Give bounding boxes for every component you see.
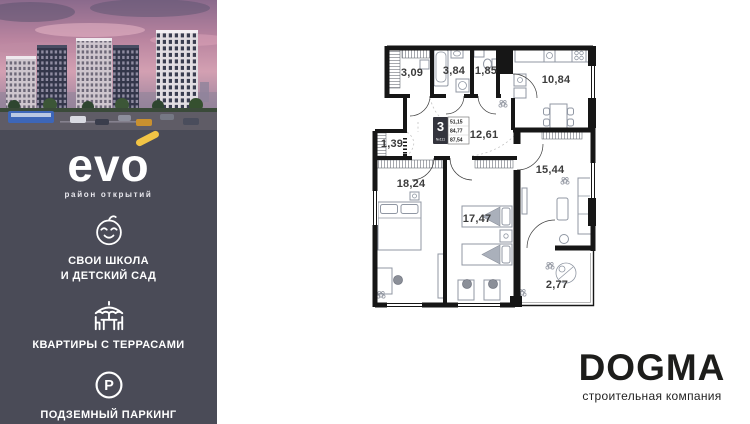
floor-plan-drawing: 3,09 3,84 1,85 10,84 12,61 1,39 18,24 15… [350, 26, 620, 318]
evo-logo-text: evo [67, 139, 149, 191]
terrace-icon [90, 299, 128, 333]
svg-text:P: P [104, 378, 114, 394]
promo-card: evo район открытий СВОИ ШКОЛА И ДЕТСКИЙ … [0, 0, 750, 424]
badge-area-without-terrace: 84,77 [450, 129, 463, 135]
feature-parking: P ПОДЗЕМНЫЙ ПАРКИНГ [0, 367, 217, 423]
badge-rooms-count: 3 [437, 119, 444, 134]
city-sunset-illustration [0, 0, 217, 130]
room-label-storage: 1,39 [381, 138, 403, 150]
room-label-children-room: 17,47 [463, 213, 492, 225]
feature-terraces: КВАРТИРЫ С ТЕРРАСАМИ [0, 299, 217, 353]
residential-complex-photo [0, 0, 217, 130]
badge-apartment-number: №111 [436, 138, 445, 142]
sidebar: evo район открытий СВОИ ШКОЛА И ДЕТСКИЙ … [0, 0, 217, 424]
feature-school-label-line2: И ДЕТСКИЙ САД [0, 269, 217, 284]
developer-logo: DOGMA [566, 349, 738, 386]
baby-icon [91, 213, 127, 249]
room-label-bathroom: 3,84 [443, 65, 466, 77]
room-label-hallway: 3,09 [401, 67, 423, 79]
room-label-bedroom: 18,24 [397, 178, 426, 190]
badge-living-area: 51,15 [450, 120, 463, 126]
feature-parking-label: ПОДЗЕМНЫЙ ПАРКИНГ [0, 408, 217, 423]
parking-icon: P [91, 367, 127, 403]
apartment-badge: 3 №111 51,15 84,77 87,54 [433, 117, 469, 144]
room-label-living-room: 15,44 [536, 164, 565, 176]
feature-terraces-label: КВАРТИРЫ С ТЕРРАСАМИ [0, 338, 217, 353]
room-label-wc: 1,85 [475, 65, 497, 77]
evo-logo-tagline: район открытий [0, 190, 217, 199]
badge-total-area: 87,54 [450, 138, 463, 144]
sidebar-panel: evo район открытий СВОИ ШКОЛА И ДЕТСКИЙ … [0, 130, 217, 424]
room-label-corridor: 12,61 [470, 129, 499, 141]
room-label-terrace: 2,77 [546, 279, 568, 291]
feature-school-label-line1: СВОИ ШКОЛА [0, 254, 217, 269]
developer-tagline: строительная компания [566, 389, 738, 403]
feature-school: СВОИ ШКОЛА И ДЕТСКИЙ САД [0, 213, 217, 285]
room-label-kitchen: 10,84 [542, 74, 571, 86]
floor-plan: 3,09 3,84 1,85 10,84 12,61 1,39 18,24 15… [350, 26, 620, 323]
developer-brand: DOGMA строительная компания [566, 349, 738, 403]
evo-logo: evo [67, 142, 149, 188]
